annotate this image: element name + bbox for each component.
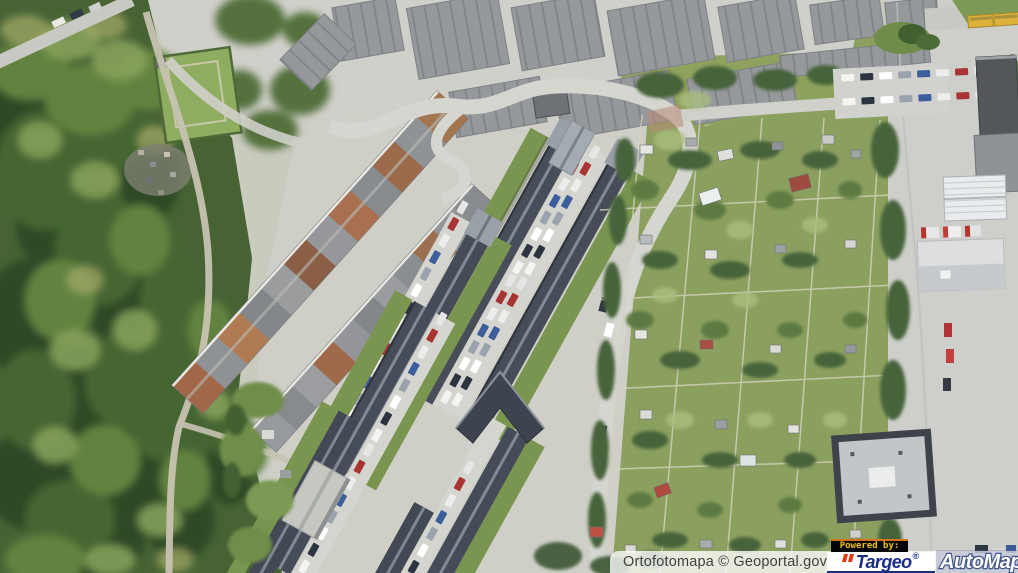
powered-by-label: Powered by: <box>840 542 900 551</box>
attribution-text: Ortofotomapa © Geoportal.gov.pl <box>623 554 842 570</box>
targeo-registered-mark: ® <box>913 551 920 561</box>
industrial-building <box>831 429 937 524</box>
powered-by-badge: Powered by: <box>831 539 908 552</box>
scrap-yard <box>124 144 192 196</box>
automapa-wordmark: AutoMapa <box>940 552 1018 572</box>
automapa-logo[interactable]: AutoMapa ® <box>936 550 1018 573</box>
targeo-wordmark: Targeo <box>856 553 912 571</box>
targeo-accent-icon <box>843 554 853 562</box>
map-viewport[interactable]: Ortofotomapa © Geoportal.gov.pl Powered … <box>0 0 1018 573</box>
aerial-photo <box>0 0 1018 573</box>
targeo-logo[interactable]: Targeo ® <box>827 552 935 573</box>
